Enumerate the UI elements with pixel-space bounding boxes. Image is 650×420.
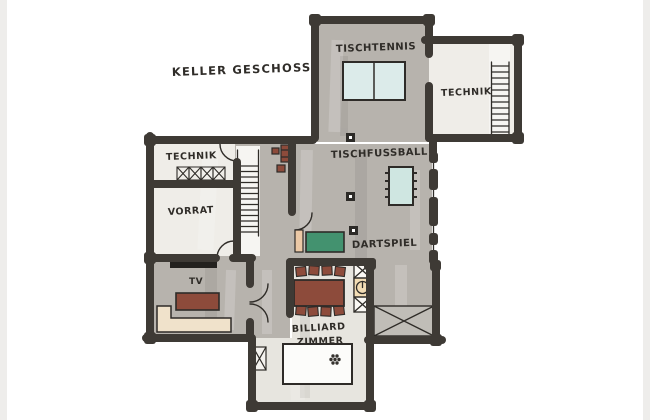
crawl-space <box>374 306 434 336</box>
table-tennis-table <box>343 62 405 100</box>
room-label-technik-upper: TECHNIK <box>441 86 492 99</box>
billiard-table <box>283 344 352 384</box>
room-label-tv: TV <box>189 277 203 287</box>
dining-table <box>294 280 344 306</box>
foosball-table <box>385 167 417 205</box>
room-label-technik-left: TECHNIK <box>166 150 217 163</box>
floor-plan-svg: KELLER GESCHOSS TISCHTENNIS TECHNIK TISC… <box>0 0 650 420</box>
tv-screen <box>170 261 217 268</box>
bench-peach <box>295 230 303 252</box>
plan-title: KELLER GESCHOSS <box>172 60 312 79</box>
sofa <box>176 293 219 310</box>
room-technik-left-floor <box>154 144 235 182</box>
dart-sideboard <box>306 232 344 252</box>
room-label-billiard-2: ZIMMER <box>297 335 344 348</box>
floor-plan-canvas: KELLER GESCHOSS TISCHTENNIS TECHNIK TISC… <box>0 0 650 420</box>
room-label-dartspiel: DARTSPIEL <box>352 238 418 251</box>
